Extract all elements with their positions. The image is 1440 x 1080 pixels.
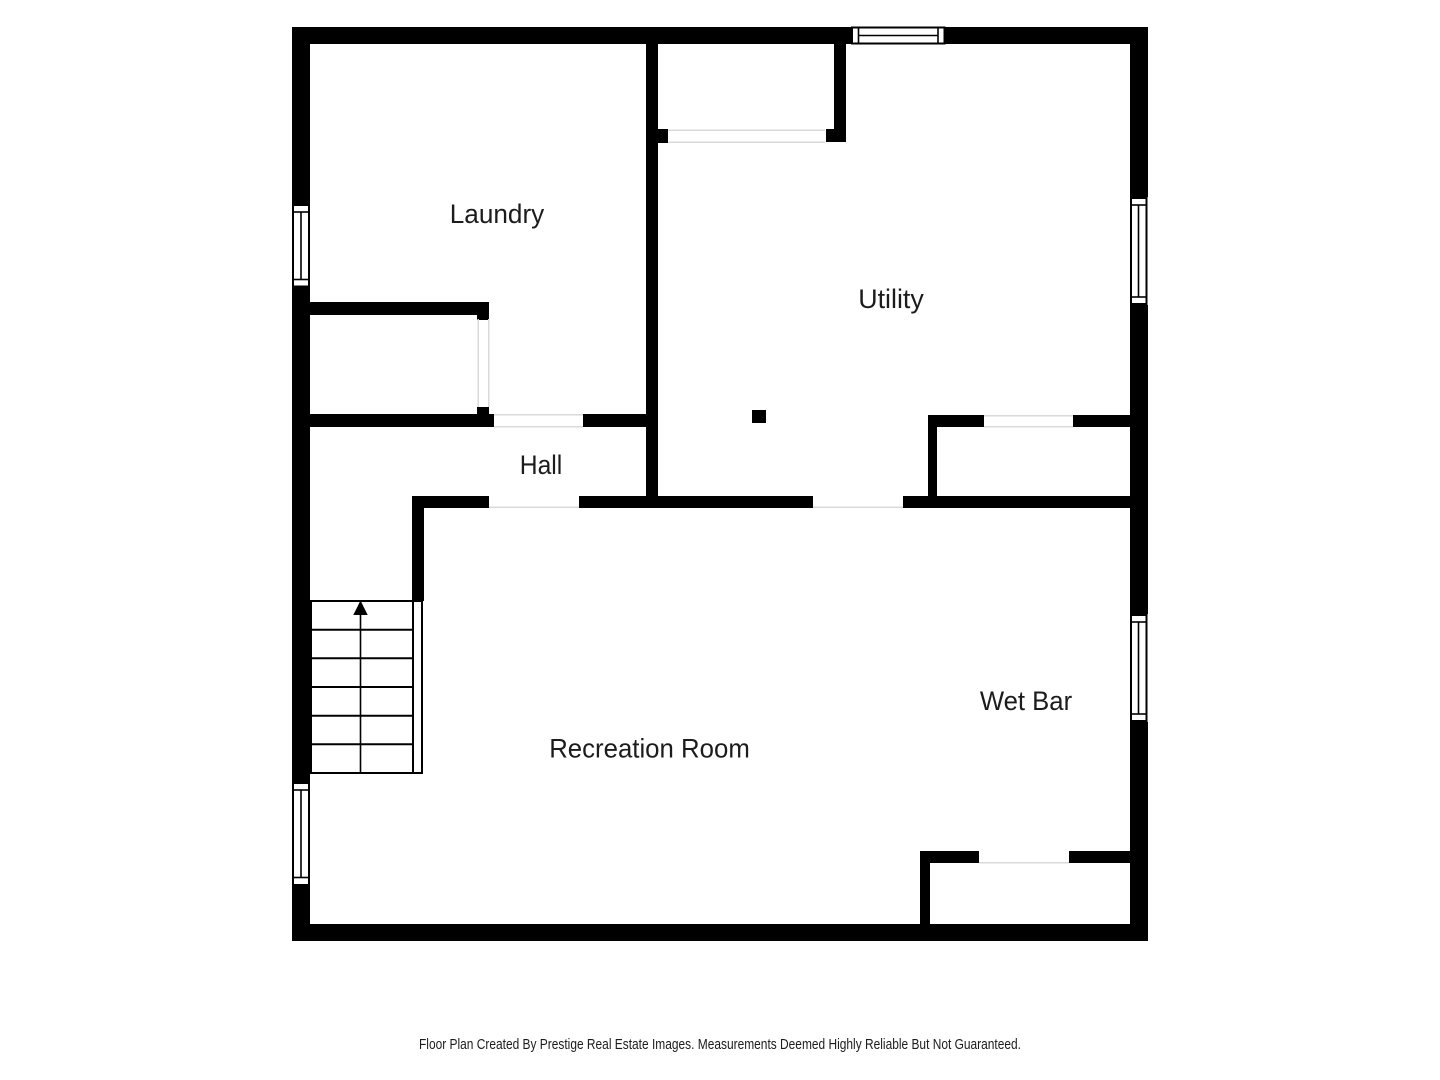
svg-text:Floor Plan Created By Prestige: Floor Plan Created By Prestige Real Esta…	[419, 1036, 1021, 1053]
svg-text:Laundry: Laundry	[450, 199, 545, 229]
svg-text:Hall: Hall	[520, 450, 563, 480]
svg-text:Utility: Utility	[858, 284, 924, 314]
svg-text:Recreation Room: Recreation Room	[549, 734, 750, 764]
svg-text:Wet Bar: Wet Bar	[980, 686, 1072, 716]
